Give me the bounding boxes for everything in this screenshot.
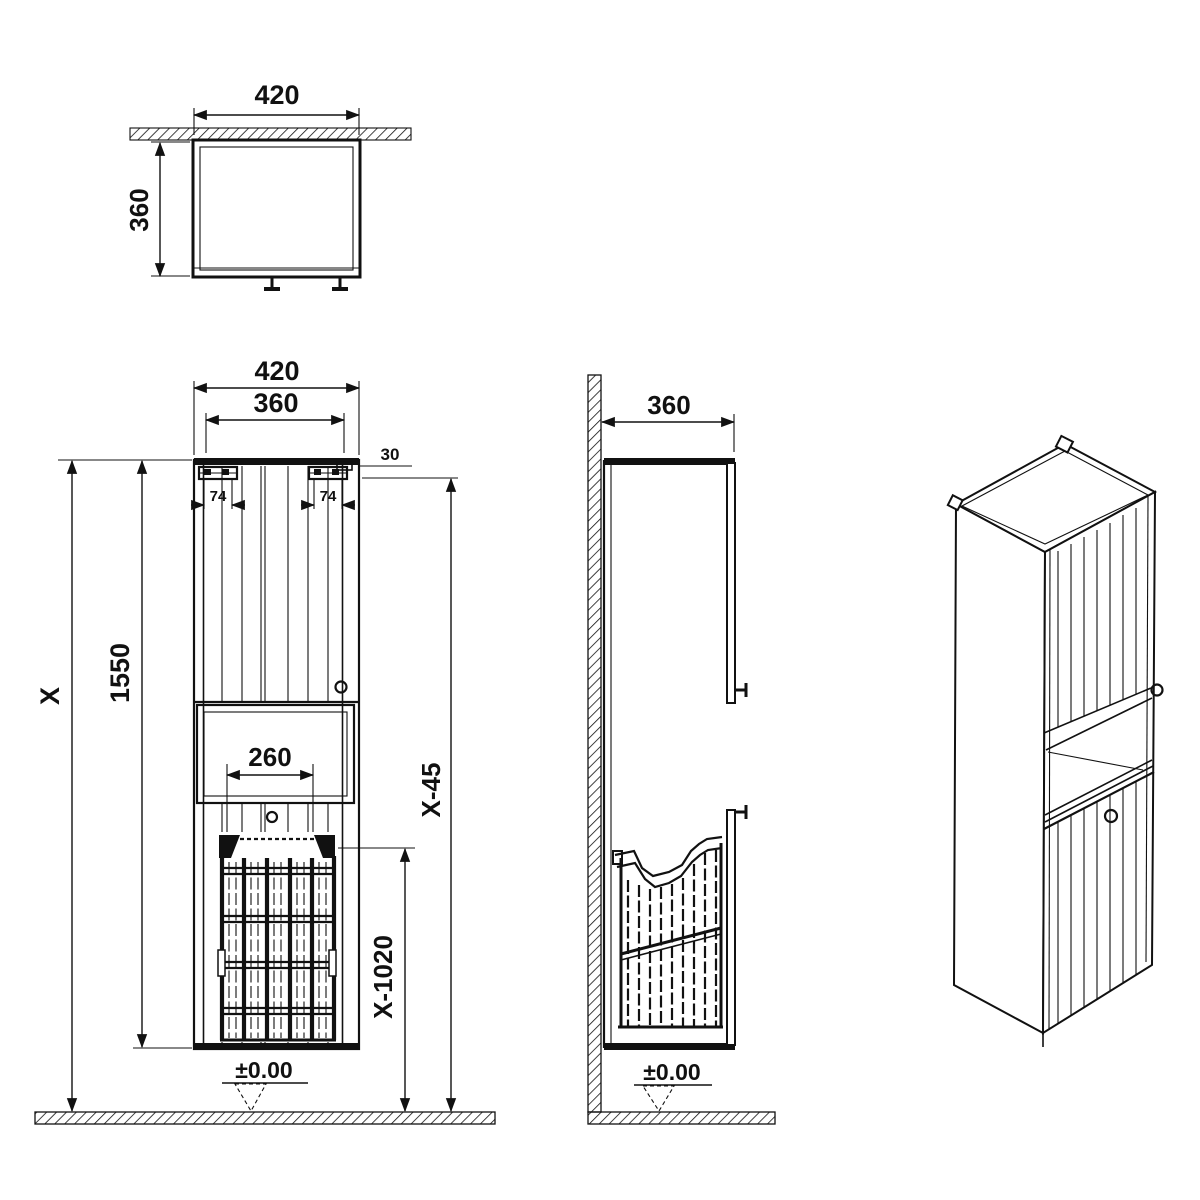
basket-runner-right xyxy=(329,950,336,976)
laundry-basket-front xyxy=(216,832,338,1042)
lower-door-side xyxy=(727,810,735,1045)
dim-label-hinge-to-floor: X-45 xyxy=(416,763,446,818)
datum-label-side: ±0.00 xyxy=(643,1059,700,1085)
dim-label-basket-width: 260 xyxy=(248,742,291,772)
dim-label-top-width: 420 xyxy=(254,80,299,110)
dim-label-top-depth: 360 xyxy=(124,188,154,231)
cabinet-top-band xyxy=(194,458,359,465)
basket-runner-left xyxy=(218,950,225,976)
wall-hatch-side xyxy=(588,375,601,1112)
dim-label-cabinet-height: 1550 xyxy=(105,643,135,703)
upper-door-side xyxy=(727,463,735,703)
dim-label-front-overall-width: 420 xyxy=(254,356,299,386)
dim-label-side-depth: 360 xyxy=(647,390,690,420)
wall-section-hatch xyxy=(130,128,411,140)
technical-drawing-canvas: 420 360 xyxy=(0,0,1200,1200)
cabinet-bottom-band xyxy=(194,1043,359,1050)
floor-front xyxy=(35,1112,495,1124)
dim-label-hinge-right: 74 xyxy=(320,488,337,505)
iso-left-face xyxy=(954,504,1045,1033)
cabinet-top-band-side xyxy=(604,458,735,465)
dim-label-hinge-left: 74 xyxy=(210,488,227,505)
cabinet-bottom-band-side xyxy=(604,1043,735,1050)
floor-side xyxy=(588,1112,775,1124)
iso-front-face xyxy=(1043,492,1155,1033)
datum-label-front: ±0.00 xyxy=(235,1057,292,1083)
cabinet-dimension-drawing: 420 360 xyxy=(0,0,1200,1200)
dim-label-front-door-width: 360 xyxy=(253,388,298,418)
dim-label-total-height: X xyxy=(35,687,65,705)
perspective-view xyxy=(948,436,1163,1047)
dim-label-top-offset: 30 xyxy=(381,445,400,464)
dim-label-basket-to-floor: X-1020 xyxy=(368,935,398,1019)
